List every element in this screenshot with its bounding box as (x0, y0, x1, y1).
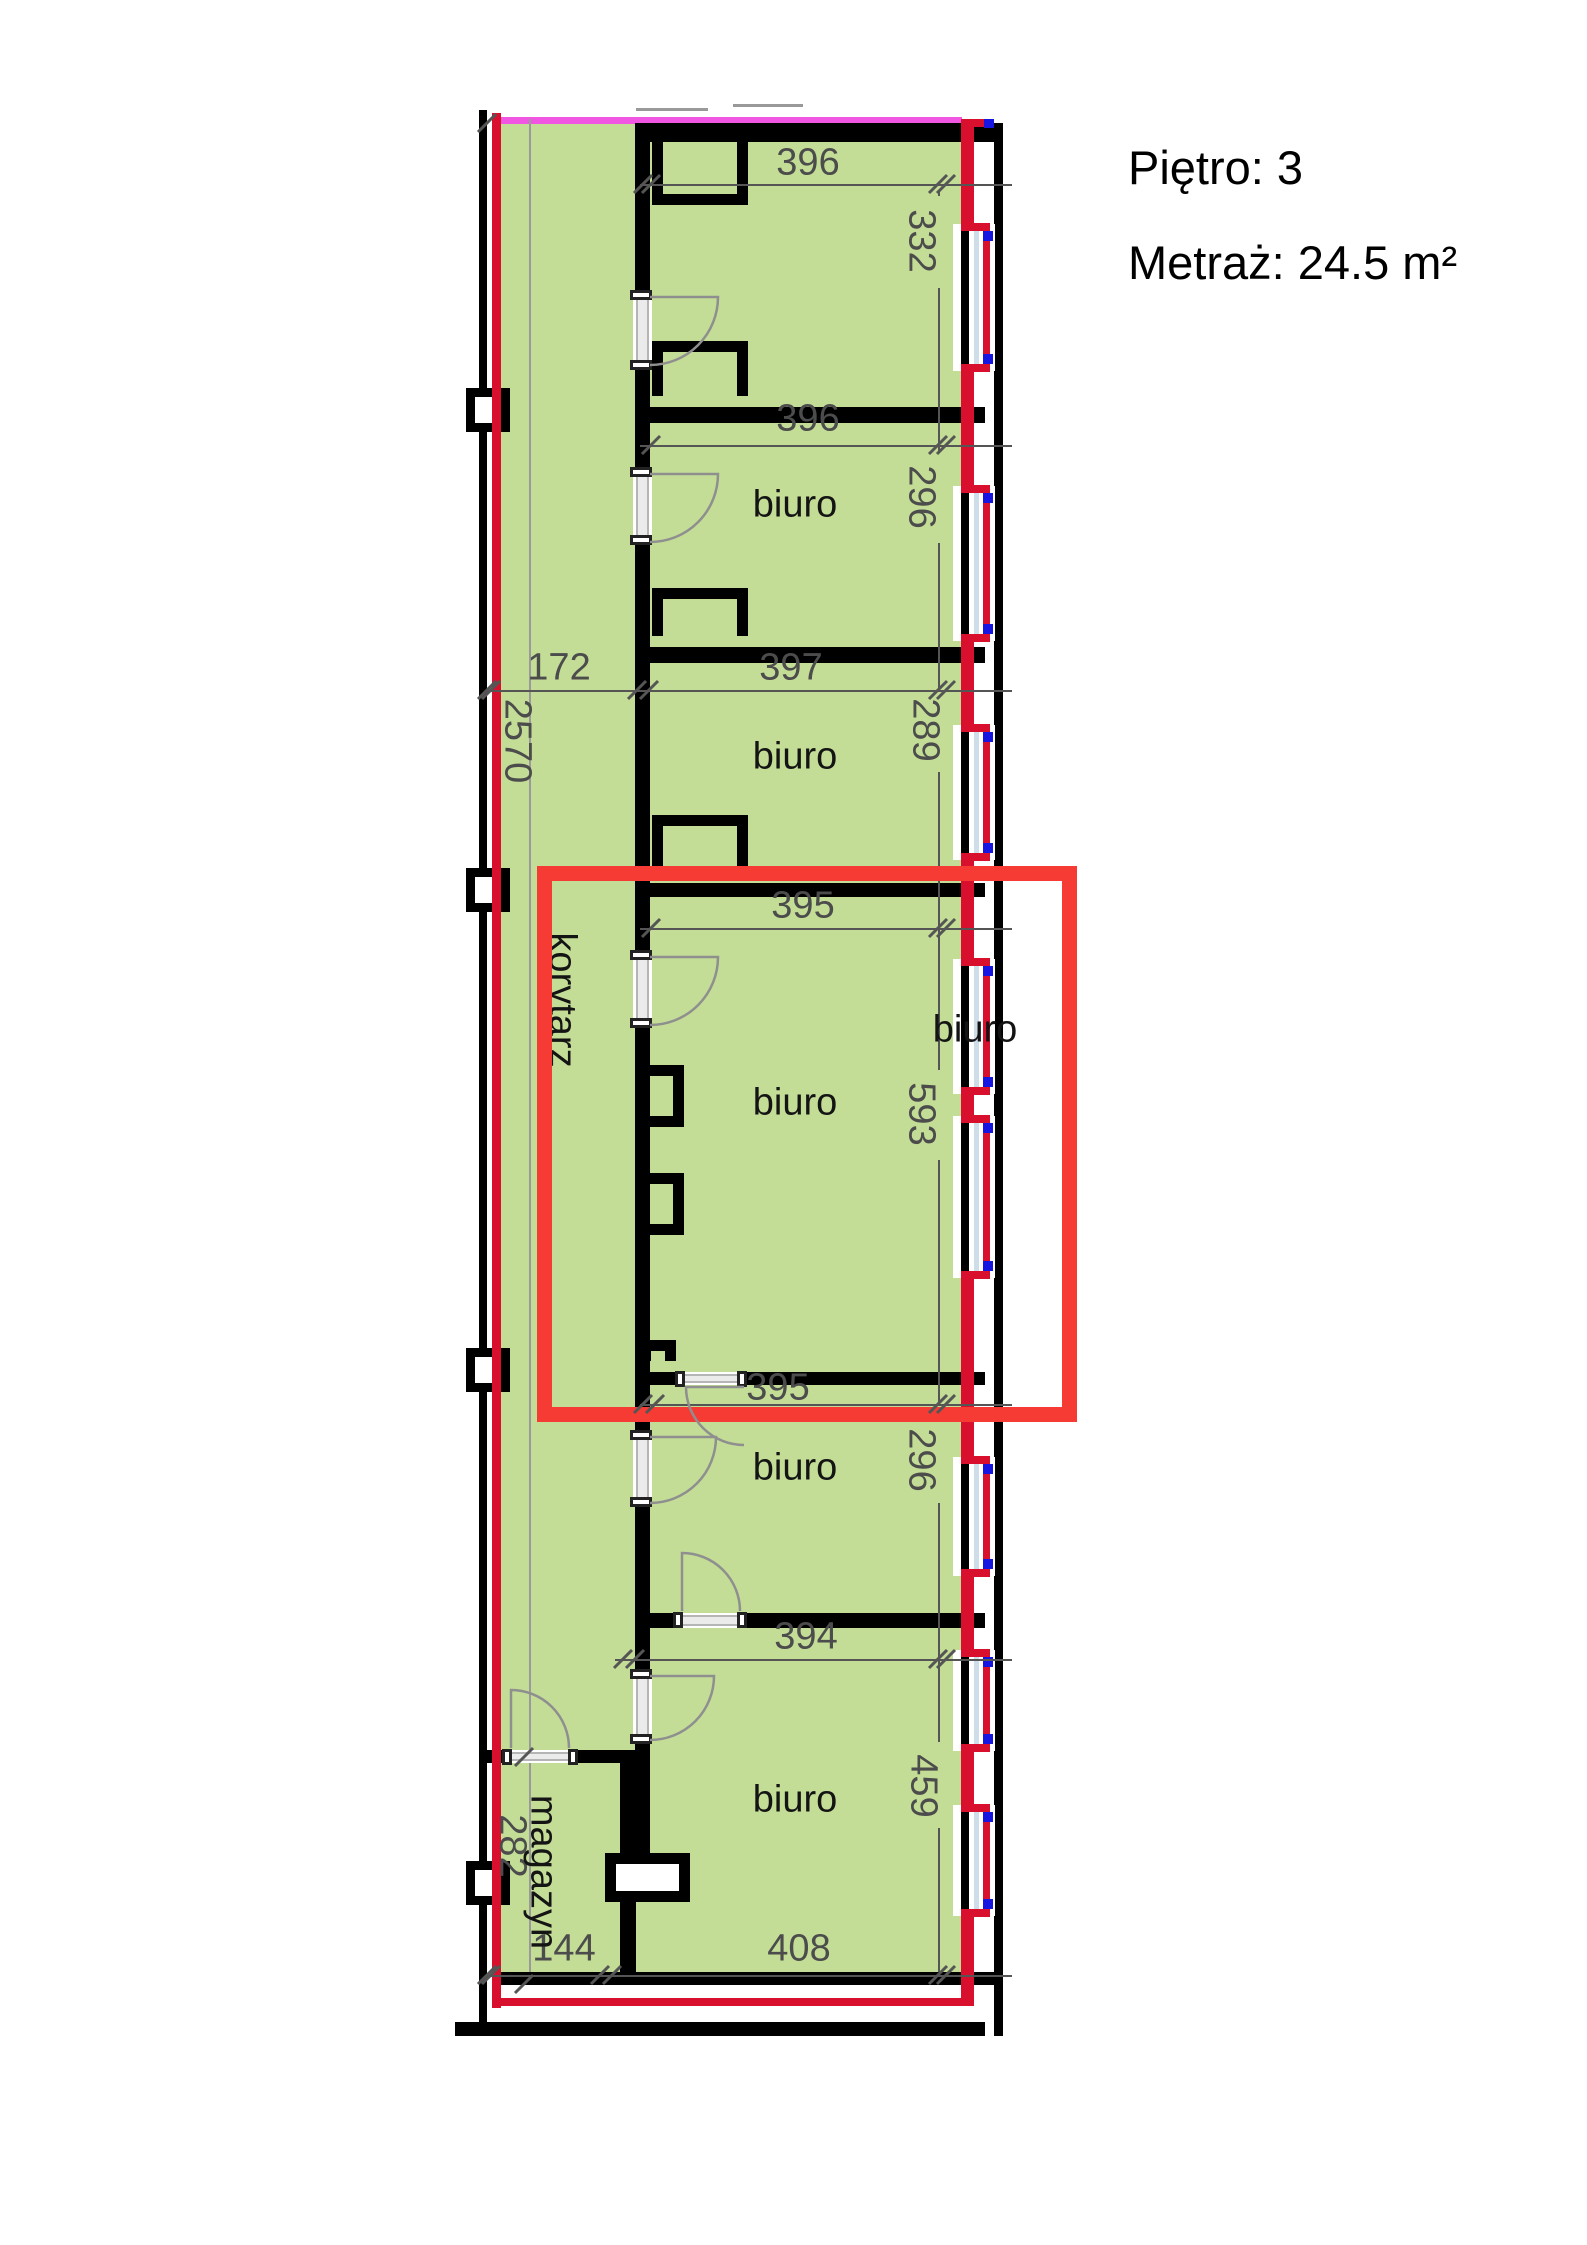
column-marker (466, 1348, 510, 1392)
dim-396-room1: 396 (776, 142, 839, 185)
window-frame-inner (961, 231, 969, 364)
red-outline-right (961, 1744, 974, 1812)
door-frame (636, 474, 649, 538)
door-jamb-cap (737, 1612, 747, 1628)
window-glazing (974, 1812, 979, 1909)
red-outline-bottom (492, 1998, 973, 2006)
dim-172-corridor: 172 (527, 647, 590, 690)
red-outline-right (961, 119, 974, 231)
door-frame (636, 297, 649, 363)
door-jamb-cap (630, 535, 652, 545)
door-jamb-cap (502, 1749, 512, 1765)
window-sill-mark (636, 108, 708, 111)
window-blue-mark (983, 1899, 993, 1909)
dimension-line (487, 690, 1012, 692)
window-blue-mark (984, 119, 994, 128)
room-label-biuro-2: biuro (753, 736, 838, 779)
window-glazing (974, 732, 979, 853)
window-frame-inner (961, 732, 969, 853)
room-label-magazyn: magazyn (522, 1795, 565, 1949)
wall-notch (652, 815, 748, 872)
door-jamb-cap (568, 1749, 578, 1765)
dimension-line (487, 1975, 1012, 1977)
window-blue-mark (983, 624, 993, 634)
window-blue-mark (983, 1559, 993, 1569)
door-jamb-cap (630, 1497, 652, 1507)
highlight-rectangle (537, 866, 1077, 1422)
window-frame-inner (961, 493, 969, 634)
room-label-biuro-4: biuro (753, 1447, 838, 1490)
red-outline-right (961, 364, 974, 493)
door-jamb-cap (630, 467, 652, 477)
door-frame (509, 1752, 571, 1761)
floor-label: Piętro: 3 (1128, 140, 1303, 195)
door-jamb-cap (673, 1612, 683, 1628)
dim-296-room5: 296 (900, 1428, 943, 1491)
area-label: Metraż: 24.5 m² (1128, 235, 1457, 290)
window-red-outer (983, 728, 990, 857)
door-frame (680, 1615, 740, 1626)
room-label-biuro-5: biuro (753, 1779, 838, 1822)
dimension-line (640, 445, 1012, 447)
window-red-outer (983, 1460, 990, 1573)
red-outline-right (961, 1569, 974, 1657)
wall-notch (652, 142, 748, 205)
wall-notch (652, 588, 748, 636)
window-glazing (974, 1657, 979, 1744)
red-outline-right (961, 634, 974, 732)
dim-2570-corridor: 2570 (496, 699, 539, 784)
door-jamb-cap (630, 360, 652, 370)
window-blue-mark (983, 493, 993, 503)
wall-outer-top (650, 123, 1003, 142)
red-outline-right (961, 1909, 974, 2006)
door-jamb-cap (630, 1669, 652, 1679)
dimension-line (938, 1503, 940, 1742)
wall-notch (652, 341, 748, 396)
wall-outer-bottom (501, 1972, 1003, 1985)
extension-line-corridor (529, 119, 531, 1977)
room-label-biuro-1: biuro (753, 484, 838, 527)
door-jamb-cap (630, 290, 652, 300)
window-frame-inner (961, 1657, 969, 1744)
window-glazing (974, 493, 979, 634)
dim-296-room2: 296 (900, 465, 943, 528)
dim-396-room2: 396 (776, 398, 839, 441)
window-blue-mark (983, 1464, 993, 1474)
window-blue-mark (983, 231, 993, 241)
dim-394-room5: 394 (774, 1616, 837, 1659)
window-glazing (974, 231, 979, 364)
window-glazing (974, 1464, 979, 1569)
wall-notch (605, 1853, 690, 1902)
door-frame (636, 1437, 649, 1500)
window-frame-inner (961, 1812, 969, 1909)
window-blue-mark (983, 1812, 993, 1822)
window-red-outer (983, 227, 990, 368)
window-frame-inner (961, 1464, 969, 1569)
window-red-outer (983, 489, 990, 638)
dim-459-room6: 459 (902, 1754, 945, 1817)
dimension-line (938, 190, 940, 196)
dim-408-room6: 408 (767, 1928, 830, 1971)
window-sill-mark (733, 104, 803, 107)
dimension-line (615, 1659, 1012, 1661)
dim-332-room1: 332 (900, 209, 943, 272)
red-outline-left (492, 113, 501, 2008)
window-blue-mark (983, 732, 993, 742)
window-blue-mark (983, 354, 993, 364)
dimension-line (938, 288, 940, 452)
door-jamb-cap (630, 1734, 652, 1744)
floorplan-page: 3963961723973953953941444083322962892570… (0, 0, 1587, 2245)
window-blue-mark (983, 1734, 993, 1744)
dimension-line (938, 543, 940, 691)
ground-line (455, 2022, 985, 2036)
column-marker (466, 388, 510, 432)
window-red-outer (983, 1808, 990, 1913)
door-frame (636, 1676, 649, 1737)
door-jamb-cap (630, 1430, 652, 1440)
dimension-line (938, 1828, 940, 1972)
column-marker (466, 868, 510, 912)
dim-289-room3: 289 (904, 698, 947, 761)
dim-397-room3: 397 (759, 647, 822, 690)
window-blue-mark (983, 843, 993, 853)
